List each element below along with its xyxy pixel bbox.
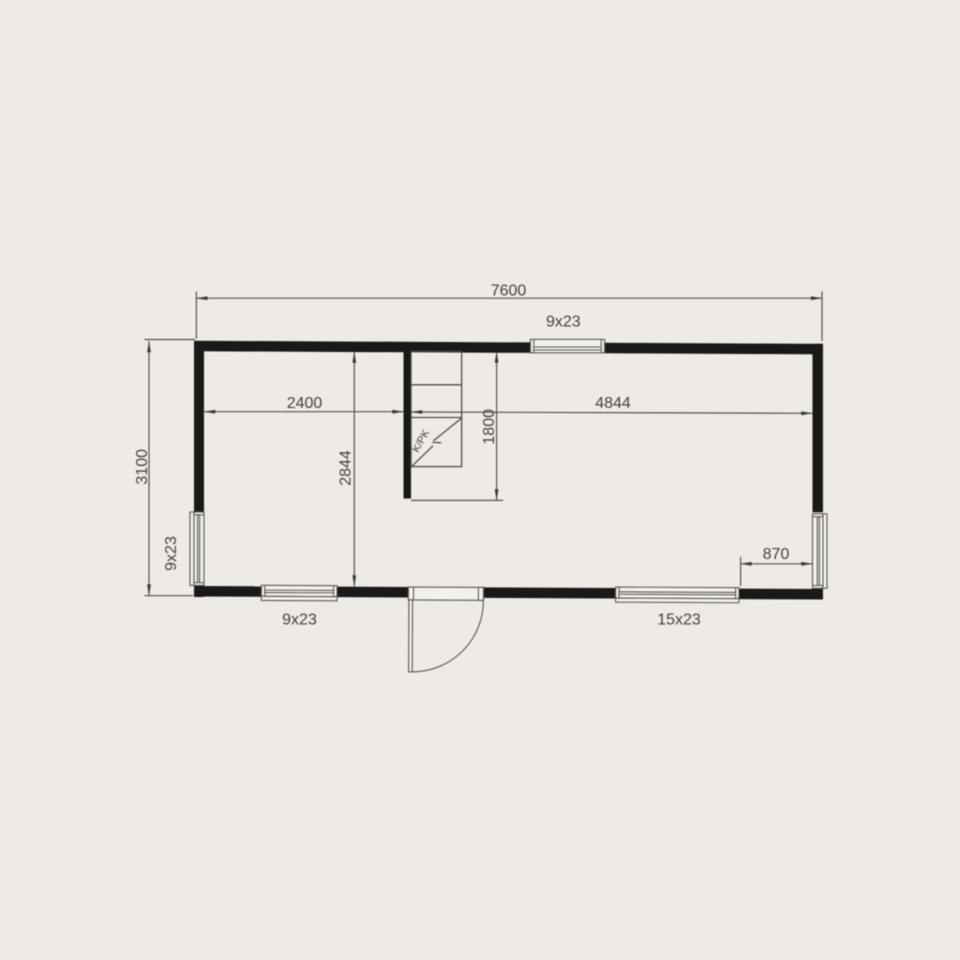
svg-text:15x23: 15x23	[657, 612, 701, 629]
svg-text:9x23: 9x23	[546, 313, 581, 330]
svg-text:2844: 2844	[338, 450, 355, 486]
svg-text:9x23: 9x23	[282, 612, 317, 629]
svg-text:4844: 4844	[595, 395, 631, 412]
svg-text:9x23: 9x23	[163, 536, 180, 571]
svg-text:7600: 7600	[491, 282, 527, 299]
svg-text:3100: 3100	[134, 449, 151, 485]
svg-text:870: 870	[763, 546, 790, 563]
svg-text:1800: 1800	[481, 409, 498, 445]
svg-text:2400: 2400	[287, 395, 323, 412]
